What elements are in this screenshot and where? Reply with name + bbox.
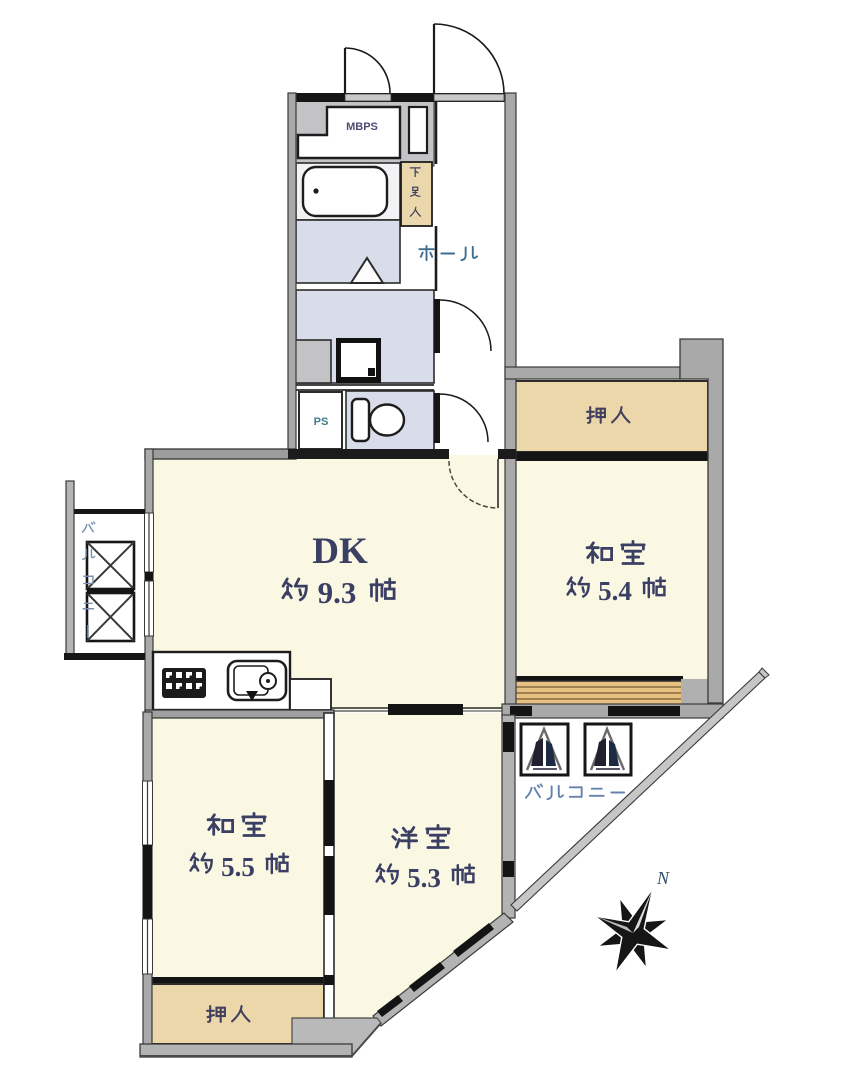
svg-text:5.4: 5.4 [598, 576, 632, 606]
svg-text:DK: DK [312, 531, 368, 572]
svg-text:5.3: 5.3 [407, 863, 441, 893]
svg-text:PS: PS [314, 416, 329, 428]
svg-text:MBPS: MBPS [346, 121, 378, 133]
svg-text:5.5: 5.5 [221, 852, 255, 882]
svg-text:N: N [656, 868, 670, 888]
svg-text:9.3: 9.3 [318, 575, 357, 610]
